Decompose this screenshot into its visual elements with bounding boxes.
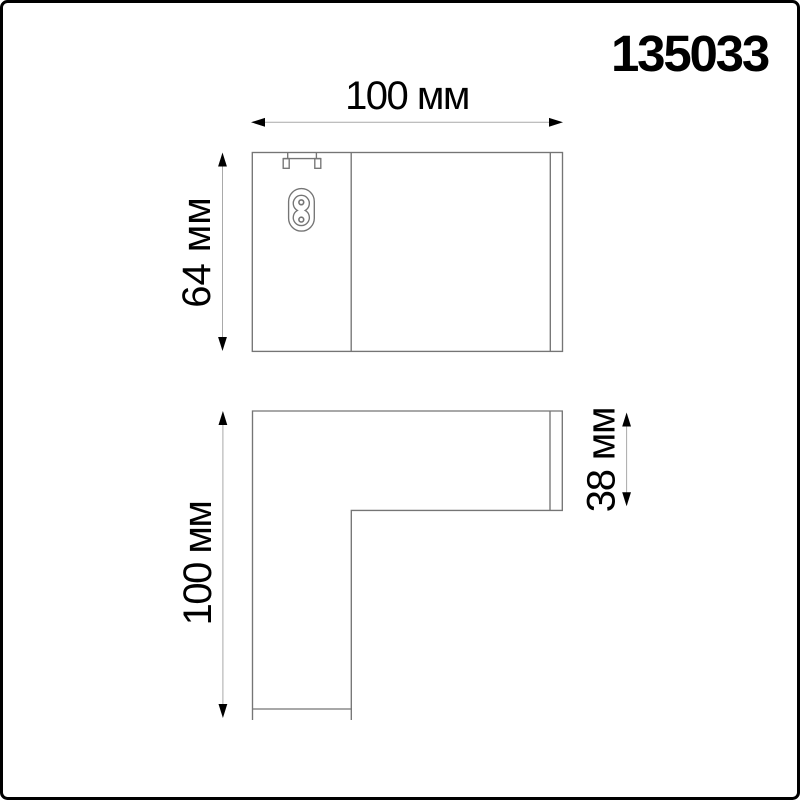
svg-text:135033: 135033 [611, 25, 769, 82]
svg-text:100 мм: 100 мм [176, 502, 220, 626]
svg-text:100 мм: 100 мм [345, 74, 469, 118]
svg-text:64 мм: 64 мм [175, 197, 219, 308]
svg-text:38 мм: 38 мм [580, 408, 624, 513]
